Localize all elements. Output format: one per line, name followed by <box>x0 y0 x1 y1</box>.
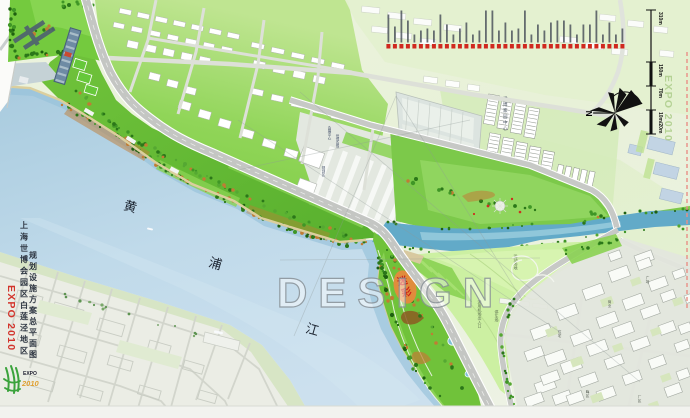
svg-text:2010: 2010 <box>21 379 40 388</box>
svg-text:EXPO 2010: EXPO 2010 <box>662 75 674 142</box>
svg-text:泾: 泾 <box>20 323 28 333</box>
svg-text:会展中心: 会展中心 <box>327 125 332 141</box>
svg-text:EXPO 2010: EXPO 2010 <box>5 285 17 351</box>
svg-text:家: 家 <box>503 107 508 113</box>
svg-text:畮区: 畮区 <box>585 389 590 397</box>
svg-text:310m: 310m <box>657 12 663 25</box>
svg-text:设: 设 <box>29 272 37 282</box>
svg-text:园: 园 <box>20 278 28 287</box>
svg-text:施: 施 <box>29 283 37 293</box>
svg-text:DESIGN: DESIGN <box>277 269 504 316</box>
svg-text:划: 划 <box>29 261 37 271</box>
svg-text:莲: 莲 <box>20 311 28 321</box>
svg-text:总: 总 <box>29 316 37 326</box>
svg-text:白: 白 <box>20 300 28 310</box>
svg-text:海: 海 <box>20 231 28 241</box>
svg-text:区: 区 <box>20 289 28 298</box>
svg-text:世: 世 <box>20 243 28 253</box>
svg-text:N: N <box>585 110 594 116</box>
svg-text:地: 地 <box>20 334 28 344</box>
svg-text:方: 方 <box>29 294 37 304</box>
svg-text:博: 博 <box>20 254 28 264</box>
svg-text:会: 会 <box>20 266 28 276</box>
svg-text:图: 图 <box>29 350 37 359</box>
svg-text:中: 中 <box>503 119 508 126</box>
svg-text:上: 上 <box>20 220 28 230</box>
svg-text:广场: 广场 <box>645 275 650 284</box>
svg-text:平: 平 <box>29 328 37 337</box>
svg-text:案: 案 <box>28 305 38 315</box>
svg-text:商业: 商业 <box>607 299 612 307</box>
svg-text:EXPO: EXPO <box>23 371 37 377</box>
svg-text:世博会场: 世博会场 <box>335 133 340 149</box>
svg-text:区: 区 <box>20 346 28 355</box>
svg-text:心: 心 <box>503 125 508 131</box>
svg-text:厂区: 厂区 <box>637 395 642 402</box>
svg-text:面: 面 <box>29 339 37 348</box>
svg-text:规: 规 <box>29 250 37 260</box>
